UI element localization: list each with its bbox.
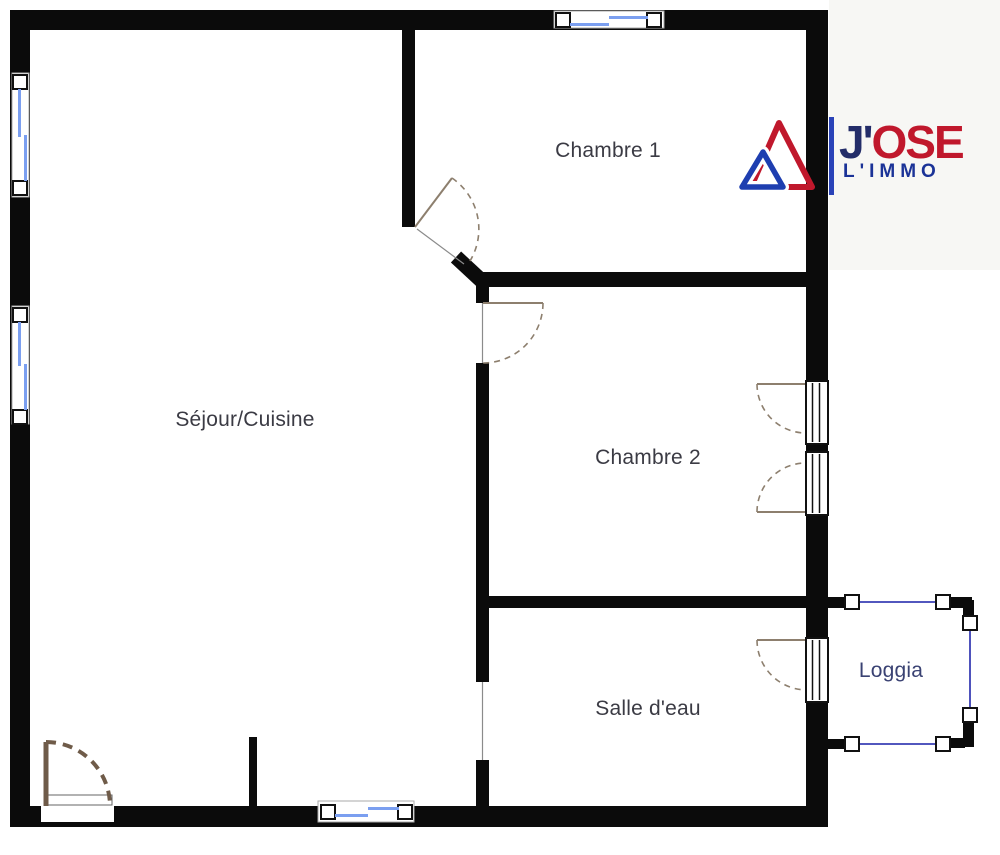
threshold-center-door	[417, 229, 464, 264]
wall-center-segment-1	[476, 287, 489, 303]
entry-door-threshold	[46, 795, 112, 805]
room-label-chambre1: Chambre 1	[555, 139, 661, 163]
window-bottom-symbol	[318, 801, 414, 822]
entry-door-symbol	[41, 742, 114, 822]
logo-wordmark-top: J'OSE	[839, 119, 963, 165]
window-left-lower-symbol	[12, 306, 29, 424]
loggia-post	[936, 595, 950, 609]
wall-center-segment-2	[476, 363, 489, 682]
floorplan-canvas: Chambre 1 Séjour/Cuisine Chambre 2 Salle…	[0, 0, 1000, 855]
window-end-post	[556, 13, 570, 27]
loggia-post	[936, 737, 950, 751]
interior-walls	[249, 30, 828, 807]
door-swing-arc-top	[757, 384, 806, 433]
loggia-post	[845, 737, 859, 751]
window-end-post	[321, 805, 335, 819]
loggia-stub	[949, 738, 965, 748]
frame-top	[806, 381, 828, 444]
room-label-chambre2: Chambre 2	[595, 446, 701, 470]
opening-threshold-lines	[417, 229, 483, 760]
window-end-post	[13, 410, 27, 424]
wall-center-segment-3	[476, 760, 489, 806]
door-swing-arc	[483, 303, 543, 363]
door-swing-arc	[757, 640, 806, 690]
wall-sejour-chambre1	[402, 30, 415, 227]
exterior-walls	[10, 10, 828, 827]
wall-chambre1-chambre2	[476, 272, 828, 287]
window-end-post	[13, 308, 27, 322]
loggia-post	[963, 616, 977, 630]
window-end-post	[13, 75, 27, 89]
window-end-post	[647, 13, 661, 27]
room-label-salle-deau: Salle d'eau	[595, 697, 700, 721]
wall-top	[10, 10, 828, 30]
door-swing-arc	[452, 178, 479, 261]
window-end-post	[398, 805, 412, 819]
loggia-stub	[828, 597, 846, 608]
door-leaf	[415, 178, 452, 227]
door-chambre2-symbol	[483, 303, 543, 363]
frame-bottom	[806, 452, 828, 515]
wall-bottom	[10, 806, 828, 827]
wall-chambre2-salledeau	[483, 596, 828, 608]
window-end-post	[13, 181, 27, 195]
room-label-sejour-cuisine: Séjour/Cuisine	[175, 408, 314, 432]
door-swing-arc-bottom	[757, 463, 806, 512]
room-label-loggia: Loggia	[859, 659, 923, 683]
logo-wordmark-bottom: L'IMMO	[843, 162, 941, 181]
wall-kitchen-stub	[249, 737, 257, 807]
window-top-symbol	[554, 11, 664, 28]
entry-door-wall-opening	[41, 804, 114, 822]
door-salledeau-loggia-symbol	[757, 638, 828, 702]
glazed-frame	[806, 638, 828, 702]
door-sejour-chambre1-symbol	[415, 178, 479, 261]
loggia-stub	[828, 739, 846, 749]
logo-separator-bar	[829, 117, 834, 195]
loggia-post	[845, 595, 859, 609]
loggia-post	[963, 708, 977, 722]
window-left-upper-symbol	[12, 73, 29, 197]
